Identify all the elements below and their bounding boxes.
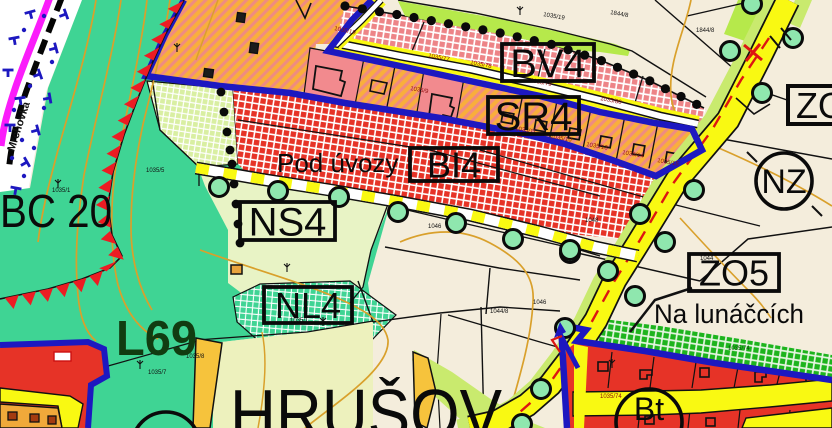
svg-text:1035/5: 1035/5 — [146, 168, 165, 174]
svg-text:1035/74: 1035/74 — [728, 346, 750, 352]
svg-text:1046: 1046 — [533, 300, 547, 306]
svg-text:NL4: NL4 — [275, 285, 341, 326]
svg-text:Bt: Bt — [634, 391, 664, 427]
svg-text:1048: 1048 — [585, 218, 599, 224]
svg-text:1844/8: 1844/8 — [696, 28, 715, 34]
svg-text:NS4: NS4 — [249, 200, 327, 244]
svg-text:L69: L69 — [116, 312, 197, 366]
svg-text:HRUŠOV: HRUŠOV — [230, 375, 502, 428]
svg-text:1035/74: 1035/74 — [600, 394, 622, 400]
svg-text:1044/8: 1044/8 — [490, 309, 509, 315]
svg-text:NZ: NZ — [761, 163, 806, 201]
svg-text:Pod úvozy: Pod úvozy — [277, 148, 398, 178]
svg-text:BV4: BV4 — [510, 42, 586, 86]
svg-text:1046: 1046 — [428, 224, 442, 230]
svg-text:SR4: SR4 — [495, 95, 573, 139]
svg-text:ZO5: ZO5 — [699, 252, 769, 293]
svg-text:BC 20: BC 20 — [0, 185, 112, 237]
svg-text:Na lunáčcích: Na lunáčcích — [654, 299, 804, 329]
svg-text:ZO: ZO — [796, 85, 832, 126]
svg-text:BI4: BI4 — [427, 144, 481, 185]
svg-text:1035/7: 1035/7 — [148, 370, 167, 376]
